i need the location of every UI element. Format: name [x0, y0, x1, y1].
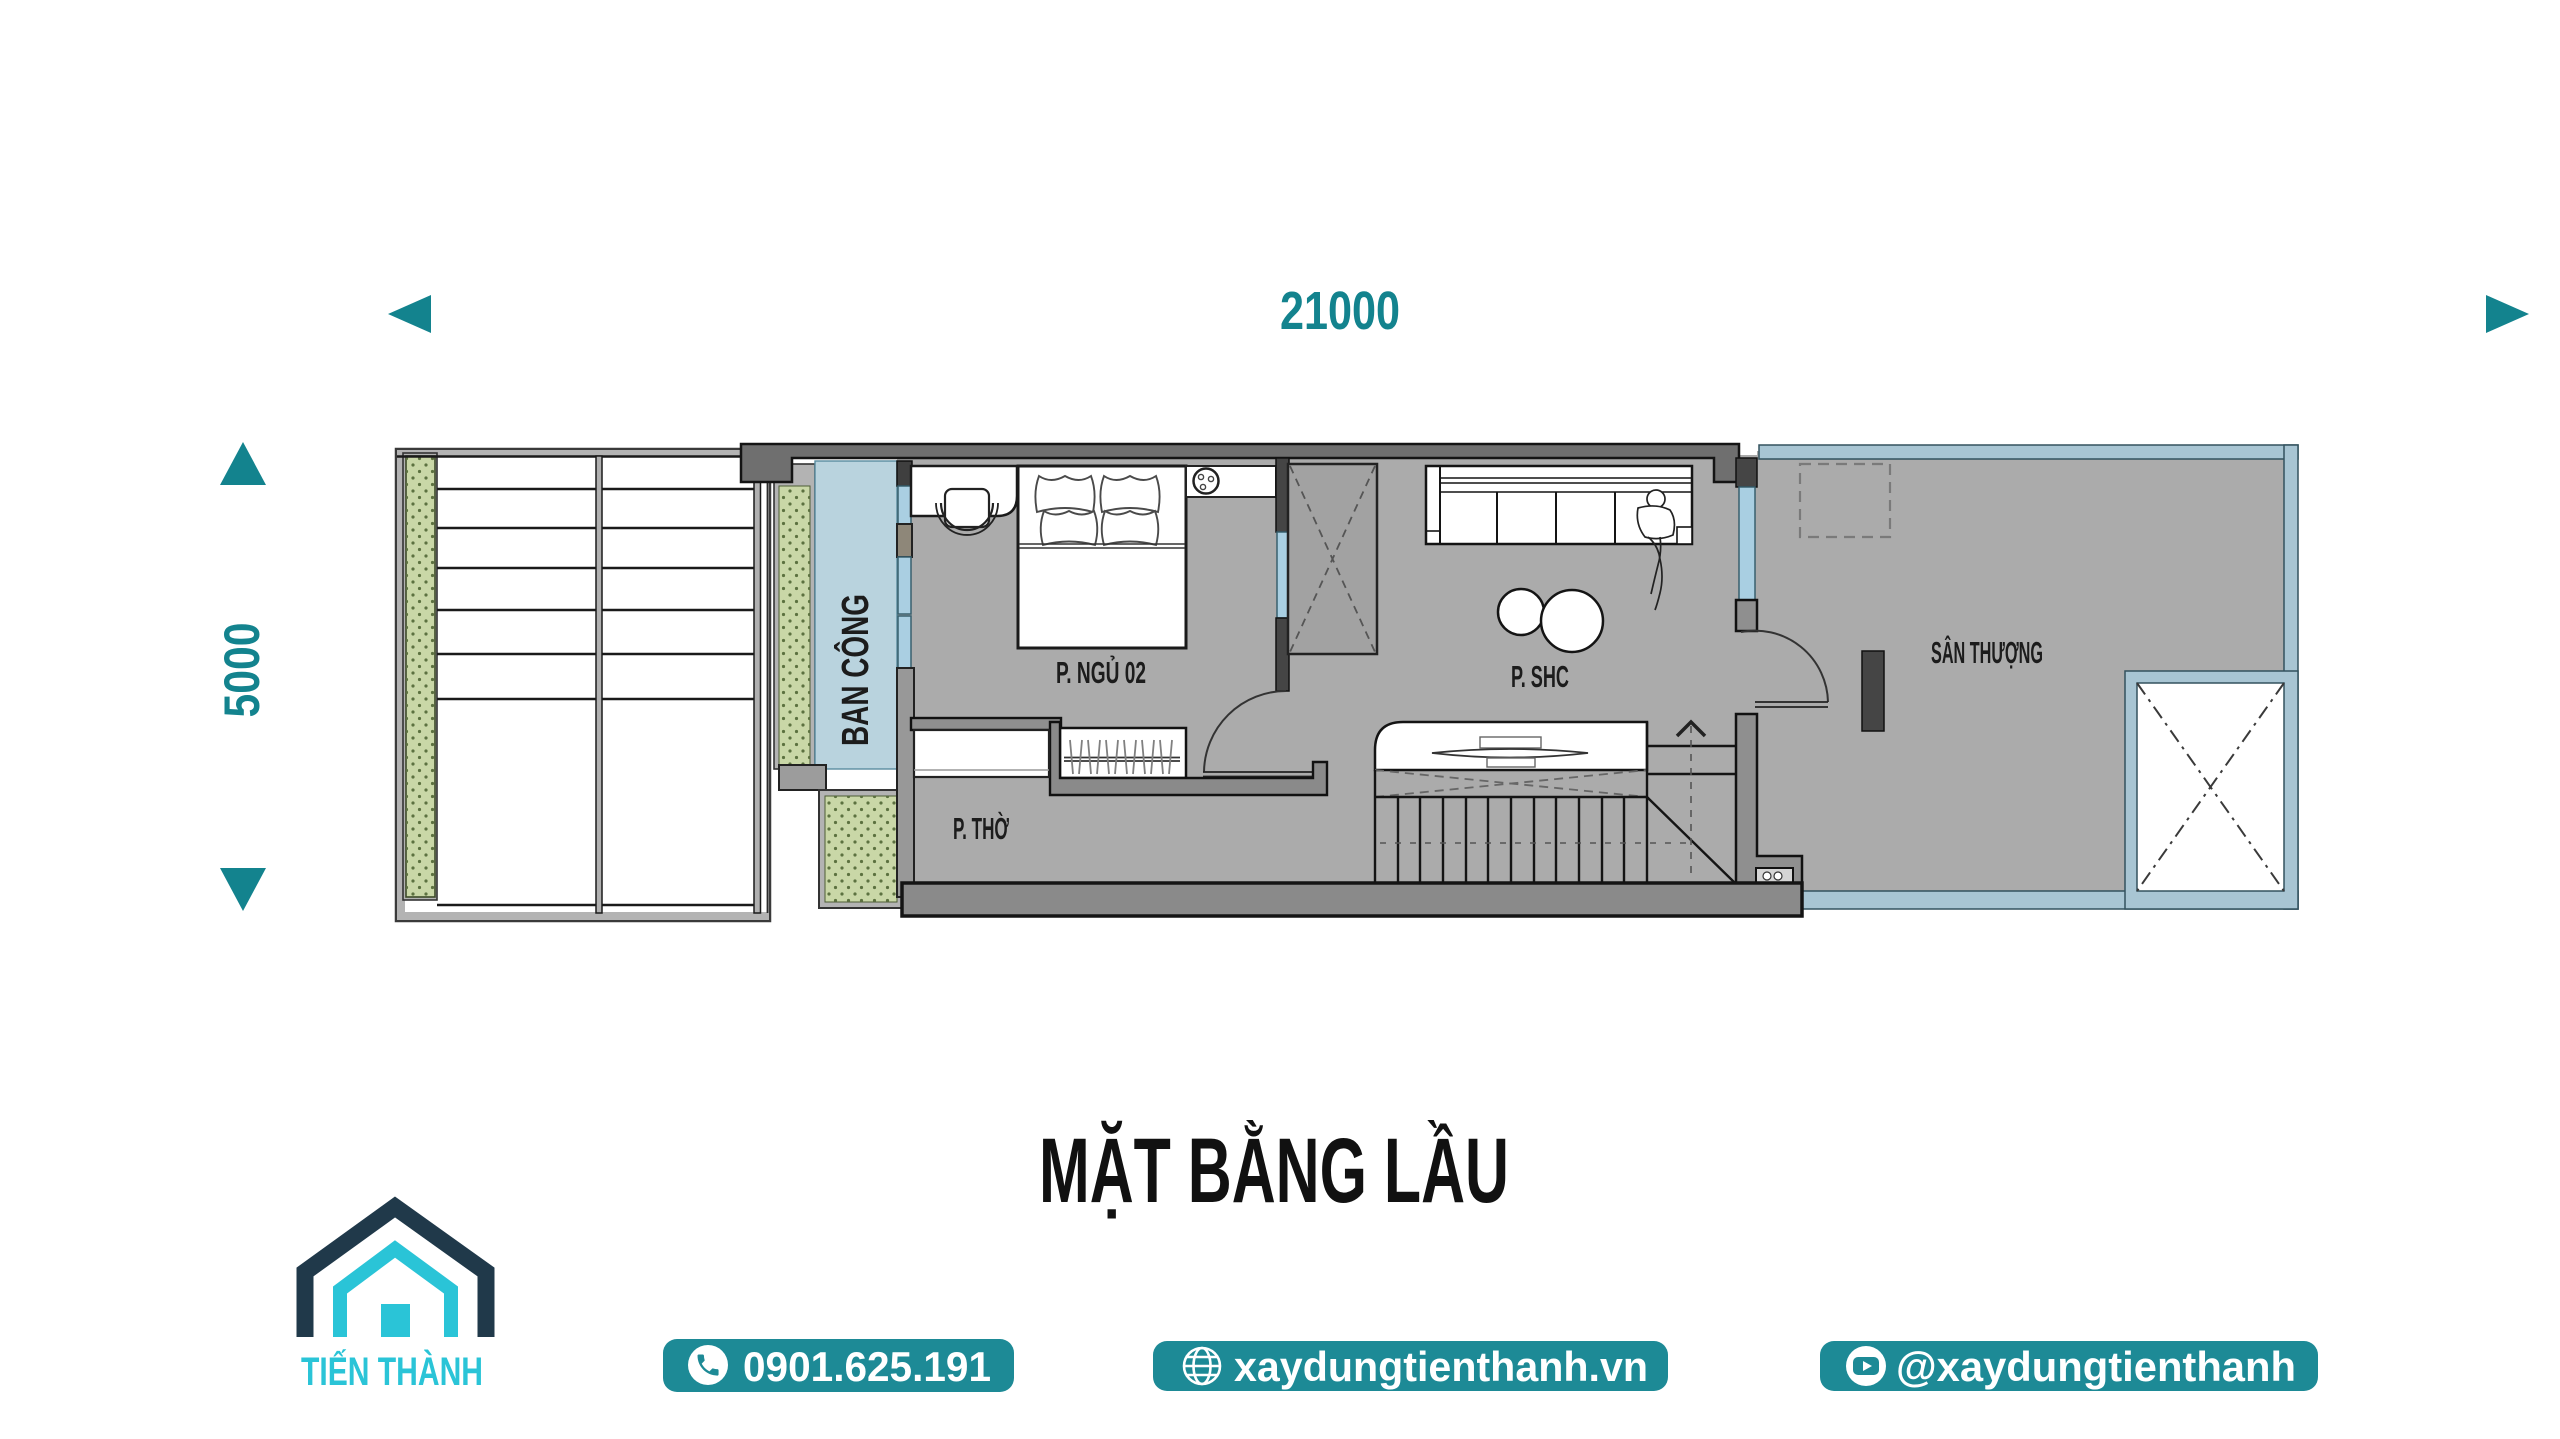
svg-text:P. THỜ: P. THỜ: [953, 810, 1009, 846]
svg-text:5000: 5000: [214, 623, 270, 718]
svg-text:xaydungtienthanh.vn: xaydungtienthanh.vn: [1234, 1343, 1648, 1390]
svg-text:MẶT BẰNG LẦU: MẶT BẰNG LẦU: [1039, 1119, 1509, 1222]
svg-text:21000: 21000: [1280, 281, 1400, 341]
svg-text:P. NGỦ 02: P. NGỦ 02: [1056, 654, 1146, 690]
svg-text:TIẾN THÀNH: TIẾN THÀNH: [301, 1348, 483, 1394]
svg-text:SÂN THƯỢNG: SÂN THƯỢNG: [1931, 634, 2043, 670]
svg-text:0901.625.191: 0901.625.191: [743, 1343, 991, 1390]
svg-text:@xaydungtienthanh: @xaydungtienthanh: [1896, 1343, 2296, 1390]
svg-text:P. SHC: P. SHC: [1511, 659, 1569, 694]
svg-text:BAN CÔNG: BAN CÔNG: [832, 594, 877, 746]
